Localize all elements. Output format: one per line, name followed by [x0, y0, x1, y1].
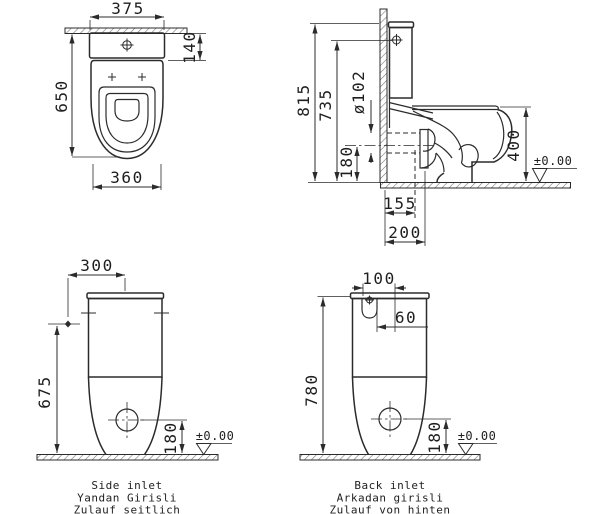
- dim-outlet-diameter: ø102: [349, 70, 368, 115]
- bowl-inner-back: [493, 112, 504, 159]
- floor-hatch-bar: [381, 183, 571, 189]
- floor-level-symbol: ±0.00: [533, 154, 578, 182]
- side-section-view: 815 735 ø102 180: [294, 9, 577, 246]
- floor-level-symbol: ±0.00: [196, 429, 235, 455]
- dim-wall-to-outlet-axis: 155: [383, 194, 416, 213]
- bowl-water-area: [115, 100, 139, 122]
- bowl-outline-plan: [91, 61, 163, 159]
- plan-view: 375 140 650 360: [52, 0, 206, 190]
- cistern-lid-front: [87, 293, 164, 299]
- wall-hatch-bar-vertical: [380, 9, 387, 183]
- view-caption: Side inlet Yandan Girisli Zulauf seitlic…: [74, 479, 181, 514]
- dim-cistern-width: 375: [111, 0, 144, 18]
- dim-inlet-offset: 60: [395, 308, 417, 327]
- floor-level-label: ±0.00: [534, 154, 573, 168]
- dim-waste-height: 180: [161, 421, 180, 454]
- dim-total-depth: 650: [52, 79, 71, 112]
- dim-waste-height: 180: [425, 420, 444, 453]
- dim-total-height: 815: [294, 83, 313, 116]
- cistern-lid-side: [389, 22, 414, 28]
- cistern-lid-front: [351, 293, 430, 299]
- dim-bowl-width: 360: [110, 168, 143, 187]
- outlet-horn-upper: [423, 129, 435, 151]
- front-view-side-inlet: 300 675 180 ±0.00 Sid: [35, 256, 234, 514]
- bowl-front-left: [353, 377, 369, 455]
- toilet-dimension-drawing: 375 140 650 360: [0, 0, 600, 514]
- outlet-flange: [420, 130, 428, 169]
- technical-drawing-canvas: 375 140 650 360: [0, 0, 600, 514]
- view-caption: Back inlet Arkadan girisli Zulauf von hi…: [329, 479, 450, 514]
- seat-outer-ring: [99, 87, 155, 152]
- bowl-base-front: [437, 173, 444, 182]
- caption-line-en: Side inlet: [91, 479, 162, 492]
- cistern-front-outline: [89, 299, 163, 378]
- dim-total-height: 780: [302, 373, 321, 406]
- flush-button-crosshair-symbol: [121, 39, 134, 52]
- floor-level-symbol: ±0.00: [458, 429, 497, 455]
- dim-cistern-depth: 140: [180, 30, 199, 63]
- side-inlet-point-marker: [48, 321, 80, 328]
- caption-line-de: Zulauf seitlich: [74, 504, 181, 514]
- bowl-front-left: [89, 377, 107, 455]
- floor-level-label: ±0.00: [458, 429, 497, 443]
- dim-button-height: 735: [316, 88, 335, 121]
- caption-line-de: Zulauf von hinten: [329, 504, 450, 514]
- outlet-horn-join: [435, 143, 453, 172]
- floor-hatch-bar: [37, 455, 218, 461]
- dim-inlet-offset: 300: [80, 256, 113, 275]
- front-view-back-inlet: 100 60 780 180: [300, 269, 497, 514]
- floor-hatch-bar: [300, 455, 480, 461]
- dim-inlet-height: 675: [35, 375, 54, 408]
- floor-level-label: ±0.00: [196, 429, 235, 443]
- dim-wall-to-outlet-end: 200: [388, 223, 421, 242]
- flush-channel: [389, 103, 433, 120]
- dim-rim-height: 400: [504, 128, 523, 161]
- bowl-front-right: [145, 377, 163, 455]
- seat-inner-ring: [106, 94, 148, 144]
- flush-button-crosshair-symbol: [391, 34, 403, 46]
- dim-outlet-axis-height: 180: [337, 145, 356, 178]
- seat-hinge-marks: [108, 73, 146, 81]
- dim-inlet-width: 100: [362, 269, 395, 288]
- caption-line-en: Back inlet: [354, 479, 425, 492]
